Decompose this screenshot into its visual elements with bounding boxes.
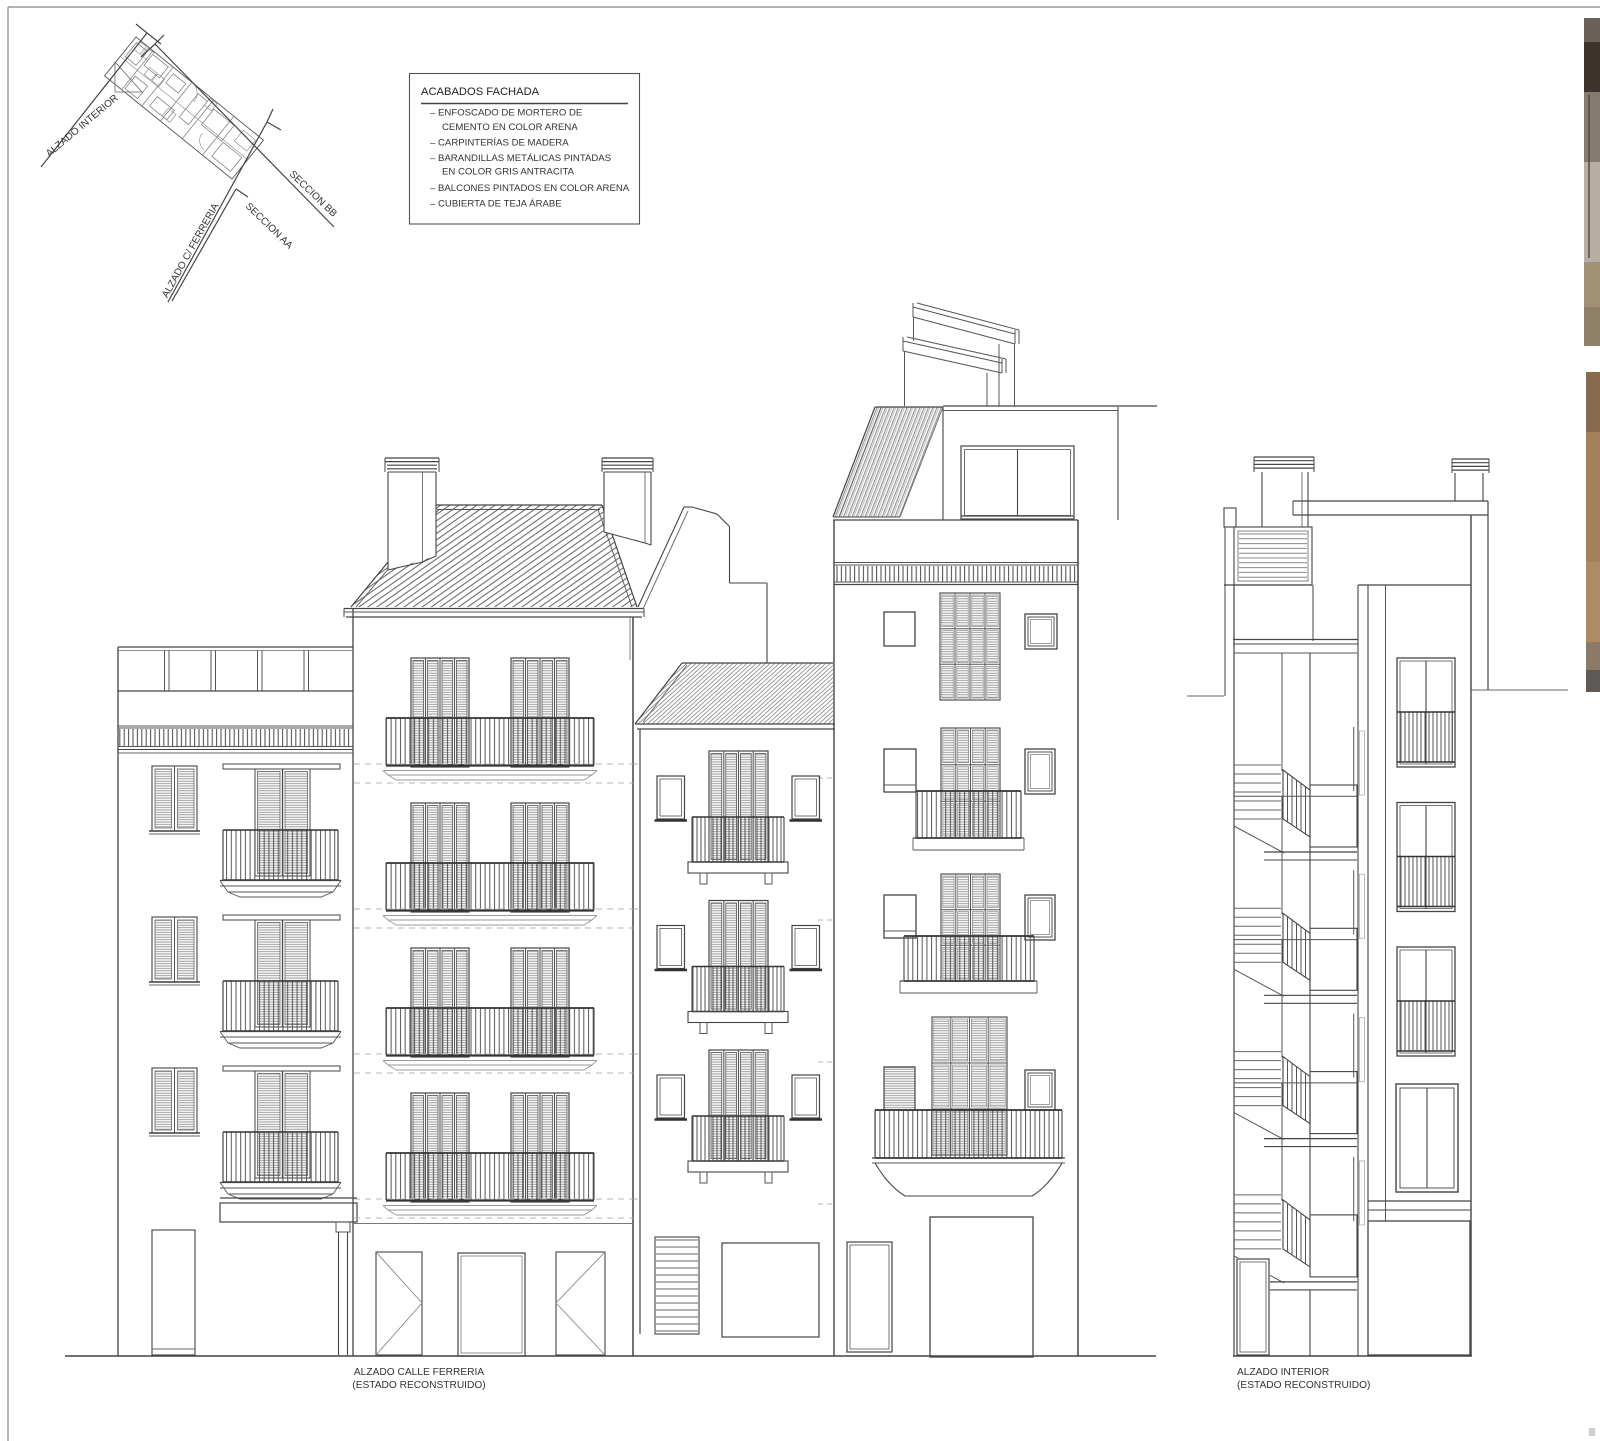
svg-text:– CARPINTERÍAS DE MADERA: – CARPINTERÍAS DE MADERA bbox=[430, 138, 569, 149]
svg-text:ALZADO CALLE FERRERIA: ALZADO CALLE FERRERIA bbox=[354, 1367, 484, 1378]
svg-text:ALZADO INTERIOR: ALZADO INTERIOR bbox=[1237, 1367, 1329, 1378]
svg-text:– BALCONES PINTADOS EN COLOR A: – BALCONES PINTADOS EN COLOR ARENA bbox=[430, 183, 630, 194]
svg-text:(ESTADO RECONSTRUIDO): (ESTADO RECONSTRUIDO) bbox=[1237, 1380, 1370, 1391]
svg-text:(ESTADO RECONSTRUIDO): (ESTADO RECONSTRUIDO) bbox=[352, 1380, 485, 1391]
svg-text:– BARANDILLAS METÁLICAS PINTAD: – BARANDILLAS METÁLICAS PINTADAS bbox=[430, 153, 611, 164]
svg-text:– ENFOSCADO DE MORTERO DE: – ENFOSCADO DE MORTERO DE bbox=[430, 108, 582, 119]
svg-text:ACABADOS FACHADA: ACABADOS FACHADA bbox=[421, 86, 540, 98]
svg-text:– CUBIERTA DE TEJA ÁRABE: – CUBIERTA DE TEJA ÁRABE bbox=[430, 199, 562, 210]
svg-text:EN COLOR GRIS ANTRACITA: EN COLOR GRIS ANTRACITA bbox=[442, 167, 575, 178]
svg-text:CEMENTO EN COLOR ARENA: CEMENTO EN COLOR ARENA bbox=[442, 122, 578, 133]
